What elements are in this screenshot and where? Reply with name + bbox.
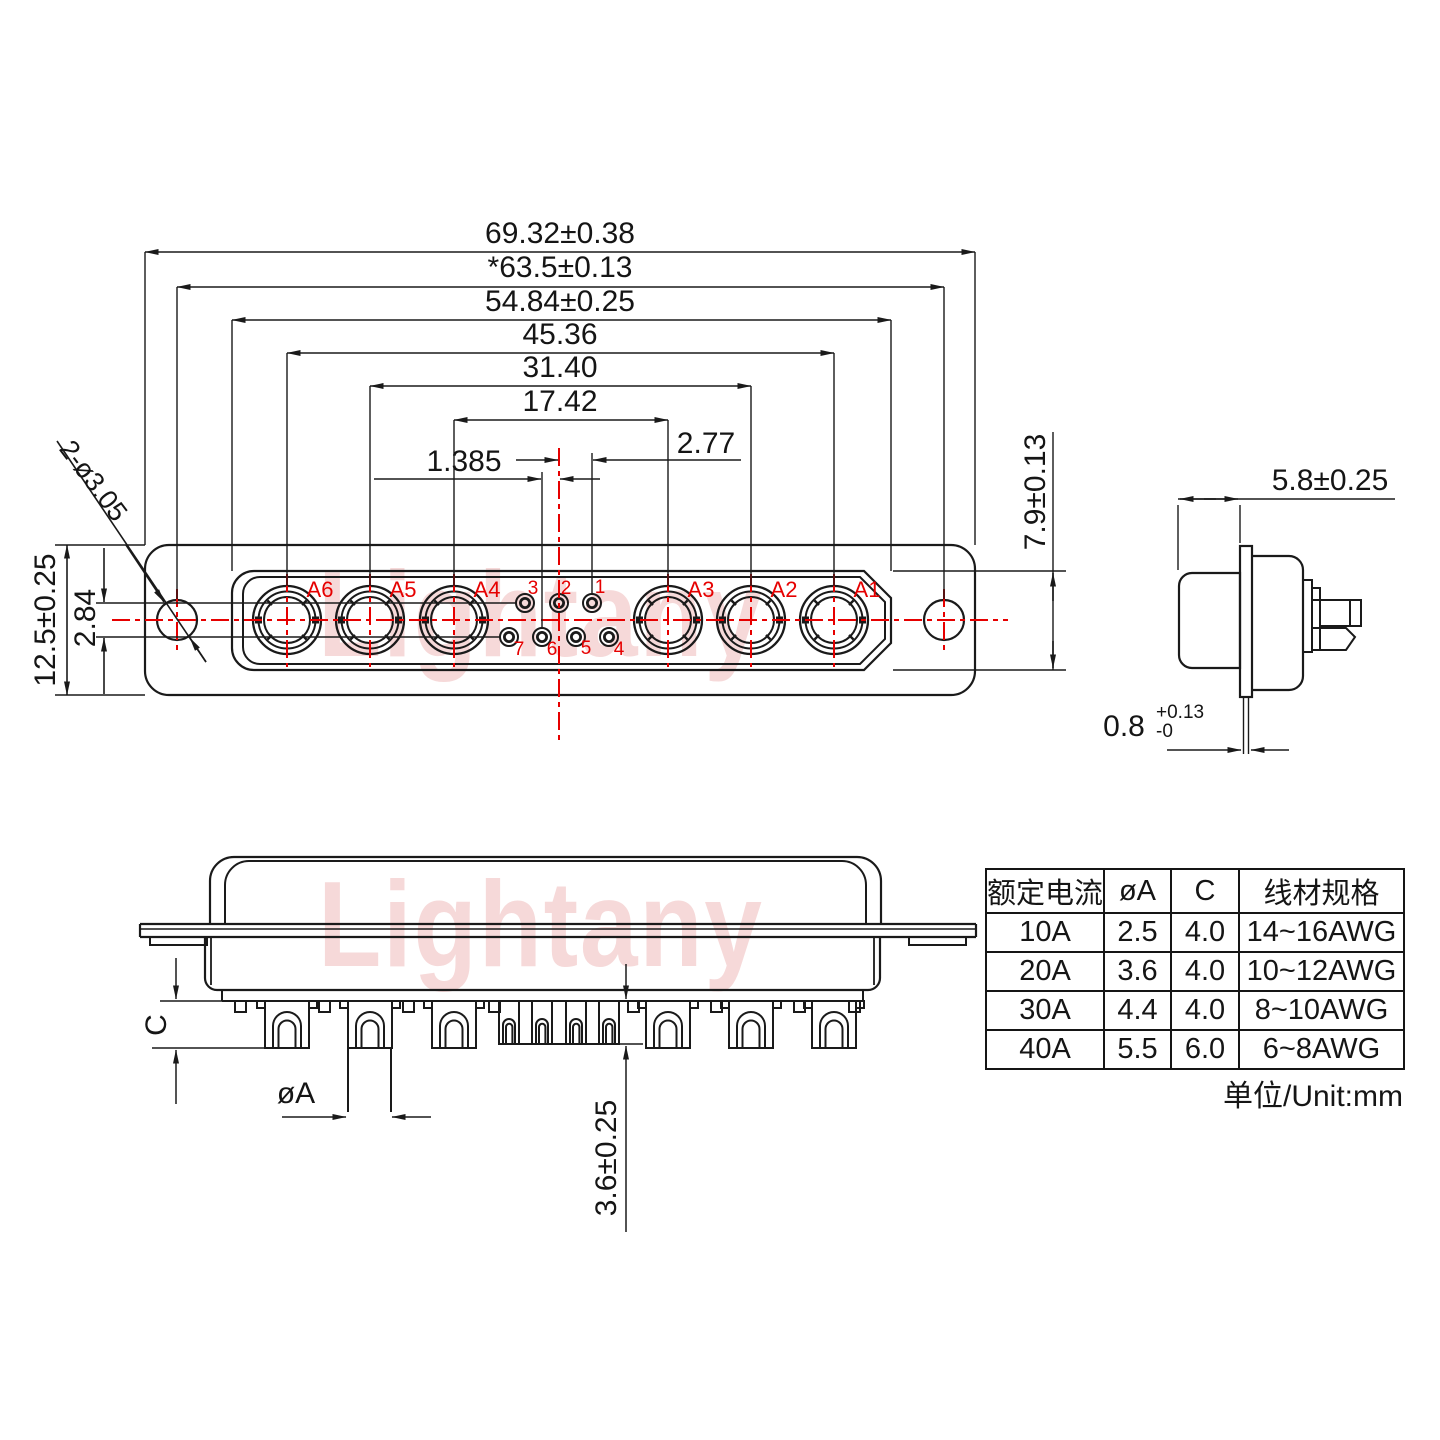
- pin-label-4: 4: [614, 639, 625, 661]
- dim-flange-thickness: 0.8: [1103, 710, 1145, 744]
- cell-c: 4.0: [1171, 991, 1239, 1030]
- header-wire-spec: 线材规格: [1239, 869, 1404, 913]
- pin-label-1: 1: [595, 577, 606, 599]
- cell-current: 10A: [986, 913, 1104, 952]
- cell-c: 6.0: [1171, 1030, 1239, 1069]
- contact-label-a3: A3: [688, 577, 715, 603]
- cell-c: 4.0: [1171, 913, 1239, 952]
- cell-wire: 10~12AWG: [1239, 952, 1404, 991]
- dim-contact-span-mid: 31.40: [522, 351, 597, 385]
- header-rated-current: 额定电流: [986, 869, 1104, 913]
- dim-shroud-height: 7.9±0.13: [1019, 434, 1053, 551]
- dim-contact-span-outer: 45.36: [522, 318, 597, 352]
- engineering-drawing-page: Lightany Lightany: [0, 0, 1440, 1440]
- table-row: 20A 3.6 4.0 10~12AWG: [986, 952, 1404, 991]
- pin-label-5: 5: [581, 638, 592, 660]
- dim-shroud-width: 54.84±0.25: [485, 285, 635, 319]
- table-row: 40A 5.5 6.0 6~8AWG: [986, 1030, 1404, 1069]
- dim-front-depth: 5.8±0.25: [1272, 464, 1389, 498]
- contact-label-a4: A4: [474, 577, 501, 603]
- flange-tol-minus: -0: [1156, 721, 1173, 742]
- dim-row-spacing: 2.84: [69, 589, 103, 647]
- dim-mount-hole-span: *63.5±0.13: [488, 251, 633, 285]
- contact-label-a1: A1: [854, 577, 881, 603]
- drawing-linework: [0, 0, 1440, 1440]
- pin-label-2: 2: [561, 578, 572, 600]
- spec-table: 额定电流 øA C 线材规格 10A 2.5 4.0 14~16AWG 20A …: [985, 868, 1405, 1070]
- contact-label-a2: A2: [771, 577, 798, 603]
- dim-pin-pitch: 2.77: [677, 427, 735, 461]
- dim-contact-span-inner: 17.42: [522, 385, 597, 419]
- cell-current: 40A: [986, 1030, 1104, 1069]
- dim-cup-diameter: øA: [277, 1077, 315, 1111]
- header-c: C: [1171, 869, 1239, 913]
- cell-dia: 2.5: [1104, 913, 1171, 952]
- pin-label-3: 3: [528, 578, 539, 600]
- solder-cups-small: [499, 1001, 619, 1044]
- table-row: 10A 2.5 4.0 14~16AWG: [986, 913, 1404, 952]
- table-row: 30A 4.4 4.0 8~10AWG: [986, 991, 1404, 1030]
- spec-header-row: 额定电流 øA C 线材规格: [986, 869, 1404, 913]
- cell-dia: 5.5: [1104, 1030, 1171, 1069]
- dim-tail-length: 3.6±0.25: [590, 1100, 624, 1217]
- dim-flange-tolerance: +0.13-0: [1156, 703, 1204, 741]
- contact-label-a6: A6: [307, 577, 334, 603]
- cell-dia: 4.4: [1104, 991, 1171, 1030]
- flange-tol-plus: +0.13: [1156, 702, 1204, 723]
- pin-label-7: 7: [514, 639, 525, 661]
- dim-pin-half-pitch: 1.385: [426, 445, 501, 479]
- dim-cup-depth: C: [140, 1014, 174, 1036]
- unit-note: 单位/Unit:mm: [985, 1071, 1403, 1115]
- header-dia: øA: [1104, 869, 1171, 913]
- dim-plate-height: 12.5±0.25: [29, 553, 63, 686]
- rear-view-dims: [152, 958, 643, 1232]
- cell-wire: 14~16AWG: [1239, 913, 1404, 952]
- cell-current: 30A: [986, 991, 1104, 1030]
- pin-label-6: 6: [547, 639, 558, 661]
- dim-overall-width: 69.32±0.38: [485, 217, 635, 251]
- cell-wire: 6~8AWG: [1239, 1030, 1404, 1069]
- rear-view: [140, 857, 976, 1012]
- cell-c: 4.0: [1171, 952, 1239, 991]
- cell-wire: 8~10AWG: [1239, 991, 1404, 1030]
- cell-current: 20A: [986, 952, 1104, 991]
- side-view: [1179, 546, 1361, 697]
- cell-dia: 3.6: [1104, 952, 1171, 991]
- contact-label-a5: A5: [390, 577, 417, 603]
- solder-cups-large: [257, 1001, 864, 1112]
